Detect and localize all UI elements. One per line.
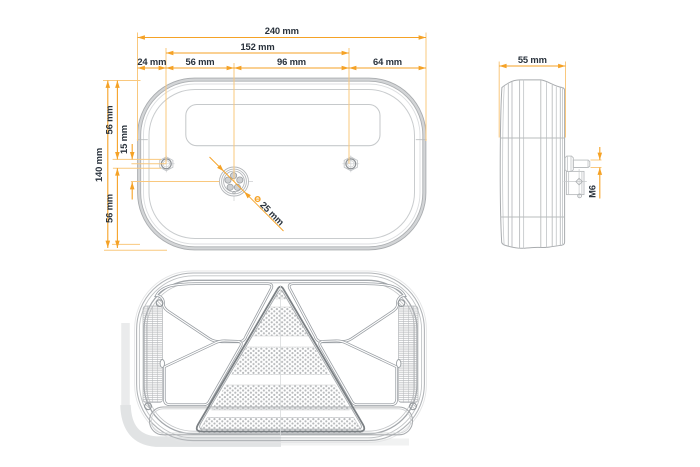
svg-text:64 mm: 64 mm [373,56,402,67]
svg-text:55 mm: 55 mm [518,54,547,65]
svg-text:M6: M6 [587,185,598,198]
svg-text:96 mm: 96 mm [277,56,306,67]
svg-text:56 mm: 56 mm [104,106,115,135]
svg-text:140 mm: 140 mm [93,148,104,182]
svg-text:56 mm: 56 mm [104,194,115,223]
svg-text:152 mm: 152 mm [240,41,274,52]
svg-text:15 mm: 15 mm [118,125,129,154]
svg-text:25 mm: 25 mm [258,199,286,227]
svg-text:240 mm: 240 mm [265,25,299,36]
svg-text:56 mm: 56 mm [186,56,215,67]
svg-text:24 mm: 24 mm [137,56,166,67]
